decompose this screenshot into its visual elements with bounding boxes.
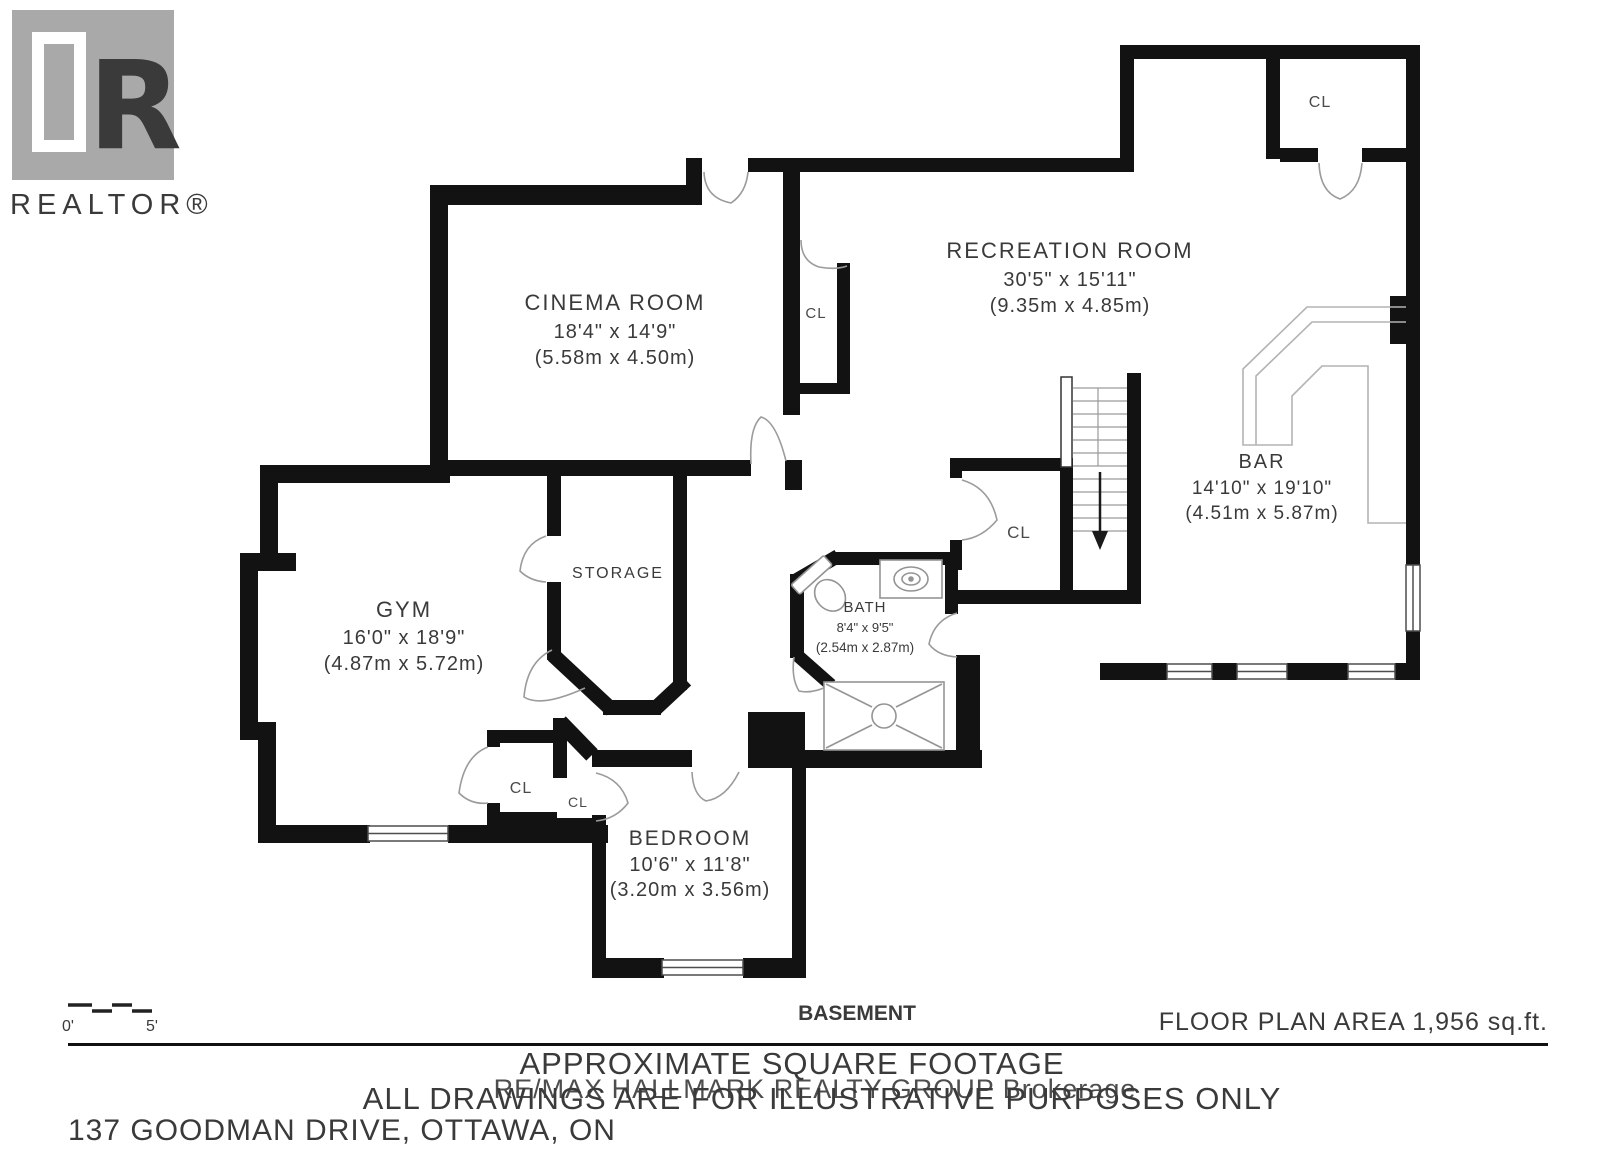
room-label-bedroom: BEDROOM 10'6" x 11'8" (3.20m x 3.56m) [610,827,771,901]
room-name: CINEMA ROOM [525,290,706,315]
footer-note-1: APPROXIMATE SQUARE FOOTAGE [519,1046,1064,1081]
room-imperial: 8'4" x 9'5" [837,620,894,635]
floor-plan-area: FLOOR PLAN AREA 1,956 sq.ft. [1159,1008,1548,1036]
window [368,826,448,841]
property-address: 137 GOODMAN DRIVE, OTTAWA, ON [68,1114,616,1147]
room-label-cinema: CINEMA ROOM 18'4" x 14'9" (5.58m x 4.50m… [525,290,706,369]
door-arc [459,747,488,803]
room-imperial: 16'0" x 18'9" [343,627,466,649]
floor-plan-page: R REALTOR® [0,0,1600,1160]
realtor-logo: R REALTOR® [10,10,214,221]
room-metric: (5.58m x 4.50m) [535,347,696,369]
window [1167,664,1212,679]
room-label-storage: STORAGE [572,565,664,582]
door-arc [751,417,786,464]
door-arc [1319,163,1362,199]
scale-start: 0' [62,1018,74,1035]
room-imperial: 10'6" x 11'8" [629,854,750,876]
room-imperial: 14'10" x 19'10" [1192,478,1332,499]
closet-label: CL [568,794,588,810]
door-arc [692,772,739,801]
door-arc [704,172,748,203]
room-name: GYM [376,597,432,622]
door-arc [596,773,628,821]
floor-plan: R REALTOR® [0,0,1600,1160]
realtor-logo-label: REALTOR® [10,189,214,221]
room-label-recreation: RECREATION ROOM 30'5" x 15'11" (9.35m x … [946,238,1193,317]
closet-label: CL [1309,94,1331,111]
room-metric: (4.87m x 5.72m) [324,653,485,675]
windows [368,565,1420,975]
scale-bar: 0' 5' [62,1005,158,1035]
room-name: BATH [844,599,887,616]
closet-label: CL [1007,523,1031,542]
door-arc [520,536,546,582]
stairs-down-arrow-icon [1092,472,1108,550]
room-name: BEDROOM [629,827,752,850]
realtor-logo-letter: R [88,35,182,177]
room-metric: (2.54m x 2.87m) [816,640,914,655]
window [1348,664,1395,679]
room-label-gym: GYM 16'0" x 18'9" (4.87m x 5.72m) [324,597,485,675]
door-arc [929,613,957,657]
window [662,960,743,975]
room-name: STORAGE [572,565,664,582]
closet-label: CL [510,780,532,797]
sink-icon [880,560,942,598]
room-metric: (4.51m x 5.87m) [1185,503,1338,524]
closet-label: CL [805,305,826,322]
scale-end: 5' [146,1018,158,1035]
room-imperial: 30'5" x 15'11" [1003,269,1136,291]
room-metric: (9.35m x 4.85m) [990,295,1151,317]
room-name: BAR [1238,451,1285,473]
shower-icon [824,682,944,750]
room-name: RECREATION ROOM [946,238,1193,263]
room-metric: (3.20m x 3.56m) [610,879,771,901]
room-labels: CINEMA ROOM 18'4" x 14'9" (5.58m x 4.50m… [324,94,1339,901]
window [1406,565,1420,631]
room-imperial: 18'4" x 14'9" [554,321,677,343]
room-label-bar: BAR 14'10" x 19'10" (4.51m x 5.87m) [1185,451,1338,524]
window [1237,664,1287,679]
door-arc [962,480,997,540]
level-label: BASEMENT [798,1002,916,1025]
footer-note-2: ALL DRAWINGS ARE FOR ILLUSTRATIVE PURPOS… [363,1081,1282,1116]
